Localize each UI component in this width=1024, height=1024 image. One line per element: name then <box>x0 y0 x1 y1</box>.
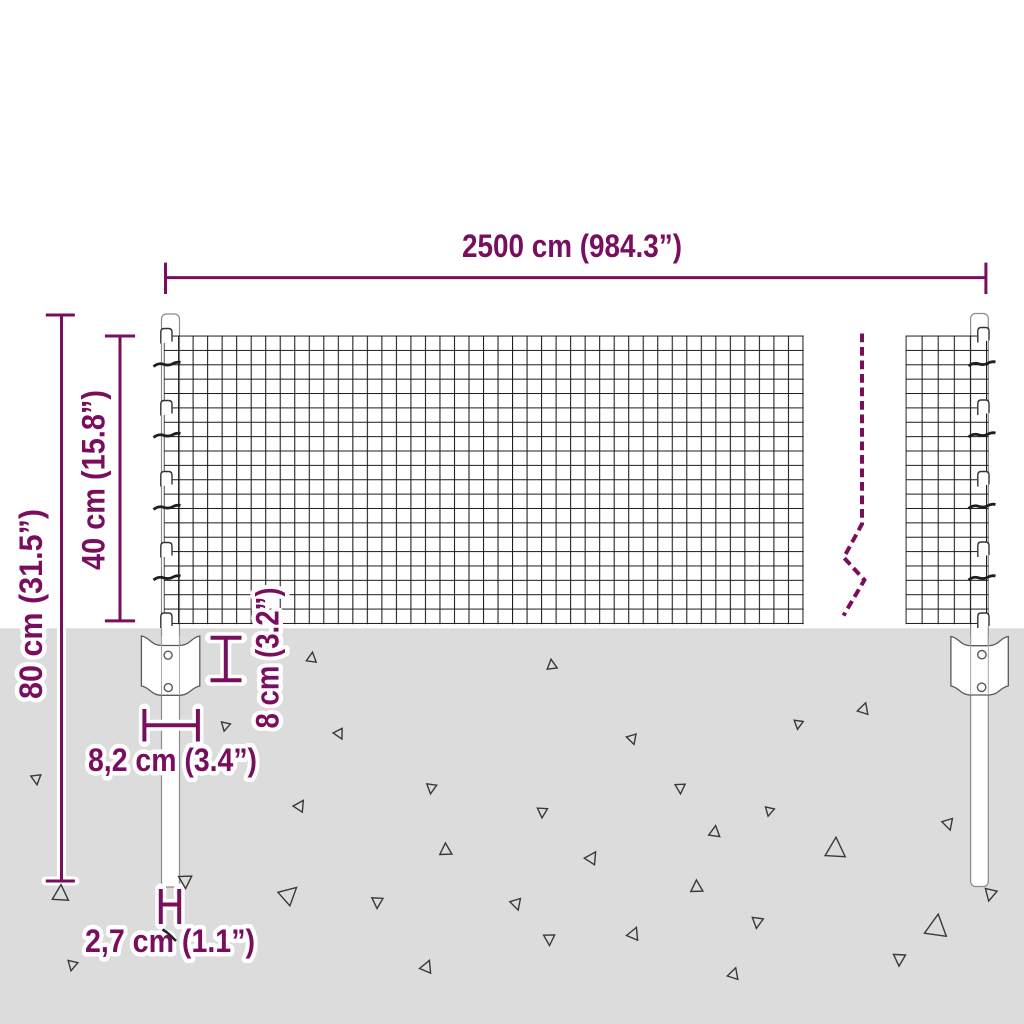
svg-text:2500 cm (984.3”): 2500 cm (984.3”) <box>462 228 682 264</box>
svg-text:40 cm (15.8”): 40 cm (15.8”) <box>76 390 112 570</box>
svg-text:8 cm (3.2”): 8 cm (3.2”) <box>250 588 286 729</box>
svg-text:8,2 cm (3.4”): 8,2 cm (3.4”) <box>88 742 257 778</box>
svg-text:80 cm (31.5”): 80 cm (31.5”) <box>13 509 49 699</box>
svg-text:2,7 cm (1.1”): 2,7 cm (1.1”) <box>85 923 255 959</box>
